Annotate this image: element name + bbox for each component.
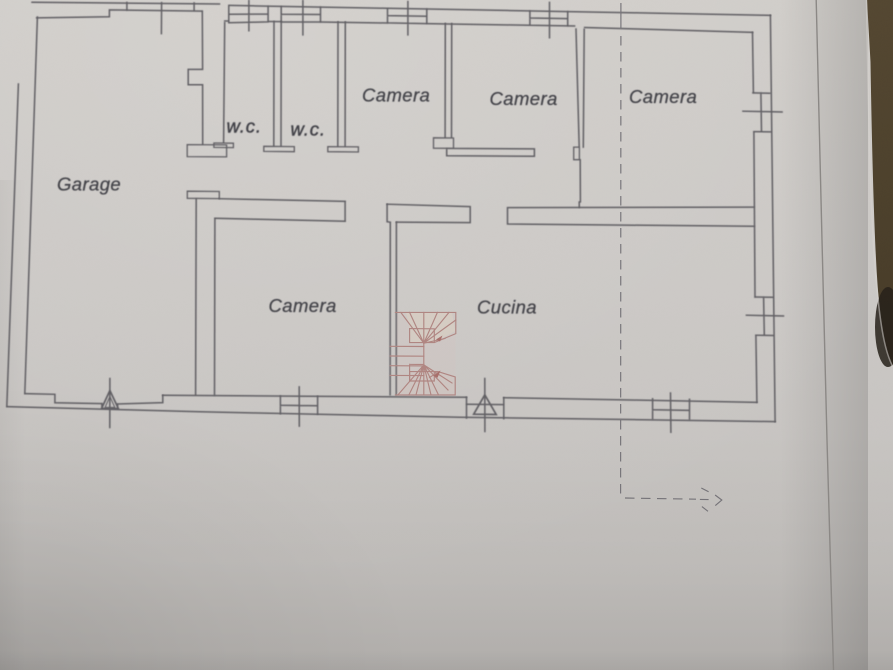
svg-text:Garage: Garage	[57, 174, 121, 195]
svg-text:Camera: Camera	[629, 86, 697, 107]
svg-text:Camera: Camera	[269, 295, 337, 316]
svg-text:Cucina: Cucina	[477, 297, 537, 318]
svg-text:Camera: Camera	[362, 85, 430, 106]
svg-text:w.c.: w.c.	[291, 119, 326, 140]
svg-text:Camera: Camera	[490, 88, 558, 109]
svg-text:w.c.: w.c.	[227, 116, 262, 137]
